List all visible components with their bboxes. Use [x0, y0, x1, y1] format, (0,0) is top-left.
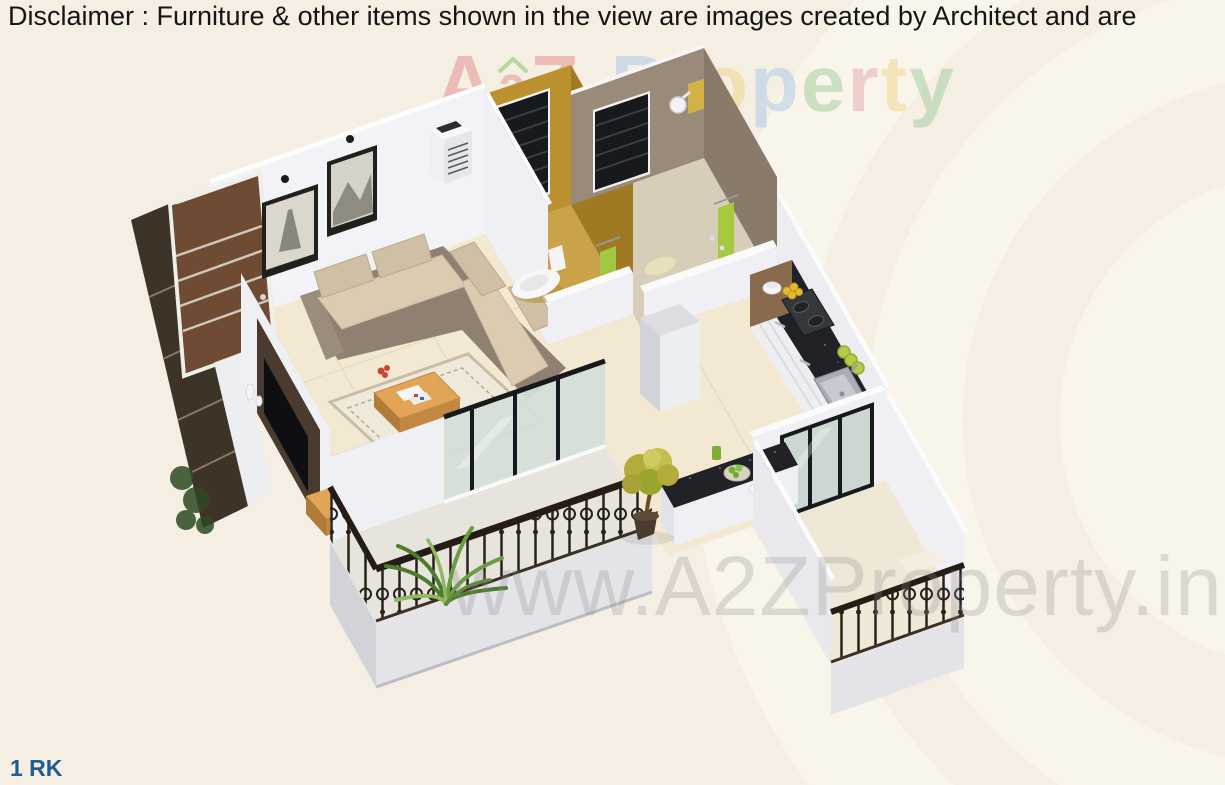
ac-unit [430, 120, 472, 184]
door-handle [260, 294, 266, 300]
fridge [640, 304, 700, 412]
screenshot-canvas: A 2 Z P r o p e r t y [0, 0, 1225, 785]
disclaimer-text: Disclaimer : Furniture & other items sho… [8, 1, 1137, 32]
white-pot [763, 282, 781, 294]
towel-green-2 [718, 202, 734, 262]
url-watermark: www.A2ZProperty.in [450, 538, 1223, 635]
shower-head [670, 97, 686, 113]
shower-tile-accent [688, 78, 706, 114]
fruit-bowl [724, 465, 750, 482]
unit-type-label: 1 RK [10, 755, 62, 782]
green-glass [712, 446, 721, 460]
floor-plan-3d-render [0, 0, 1225, 785]
